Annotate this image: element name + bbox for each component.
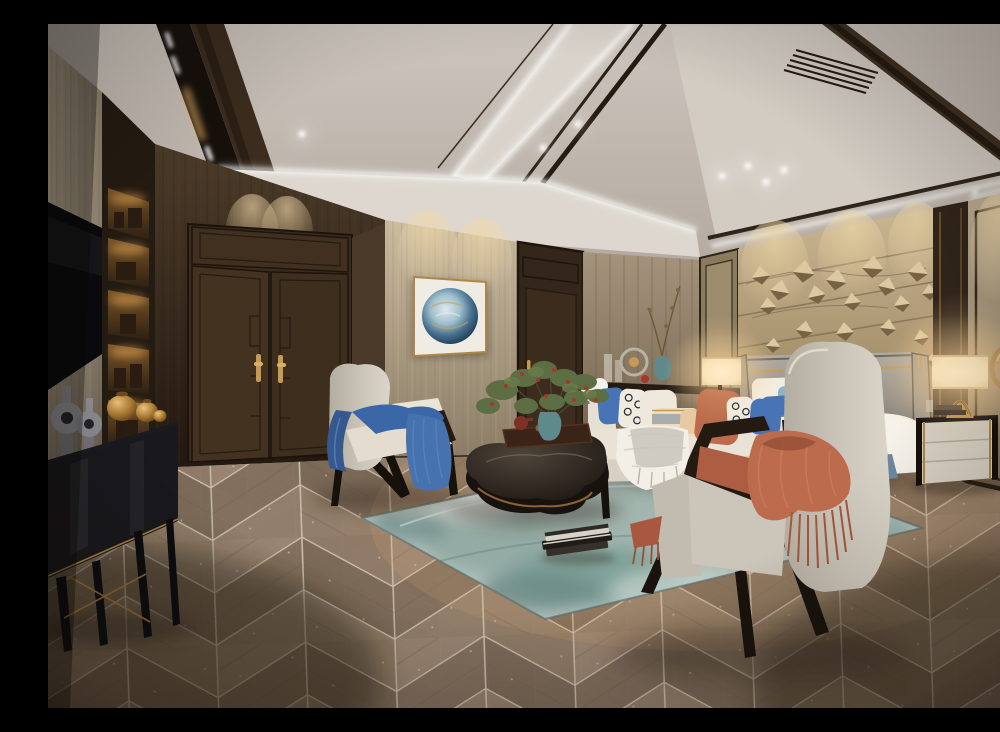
bedroom-render — [40, 16, 1000, 716]
light-overlays — [48, 24, 1000, 708]
